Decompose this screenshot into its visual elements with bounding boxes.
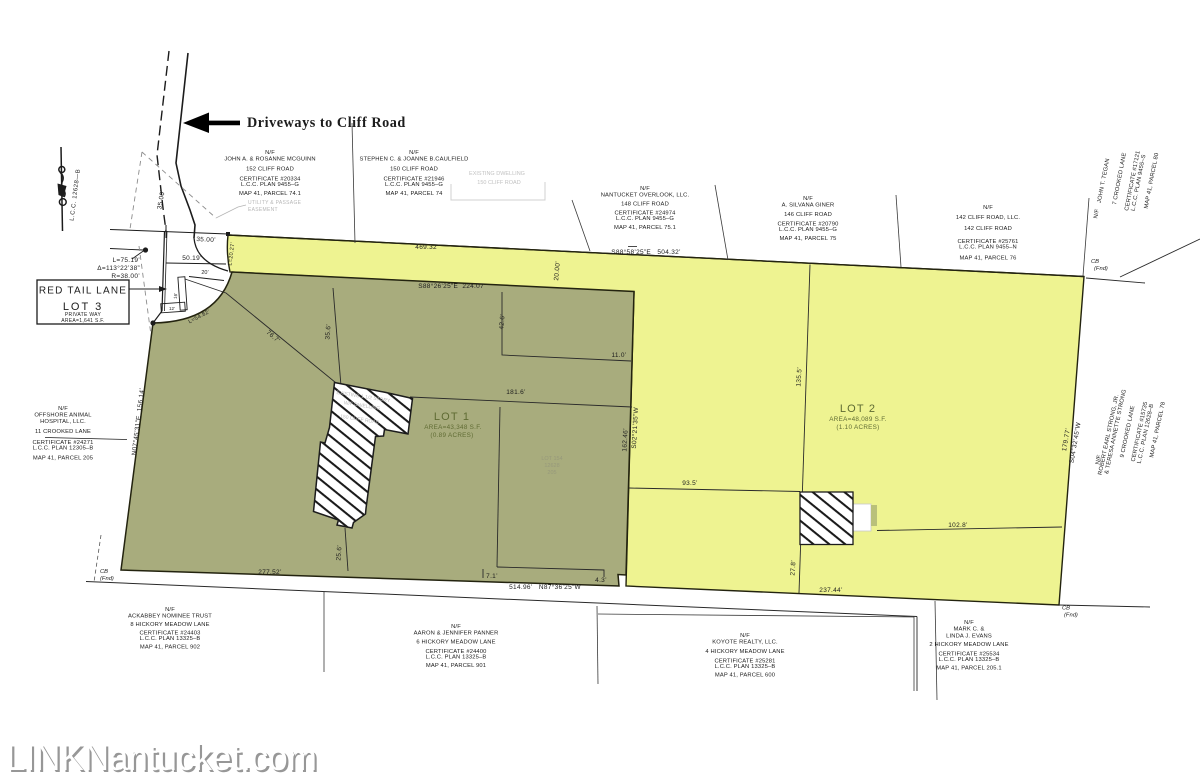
svg-text:205: 205: [547, 470, 556, 476]
svg-text:102.8’: 102.8’: [948, 522, 968, 529]
svg-text:NANTUCKET OVERLOOK, LLC.: NANTUCKET OVERLOOK, LLC.: [601, 193, 690, 199]
svg-text:(Fnd): (Fnd): [100, 576, 114, 582]
svg-text:AREA=43,348 S.F.: AREA=43,348 S.F.: [424, 424, 481, 431]
svg-text:N/F: N/F: [983, 205, 993, 211]
svg-text:S88°58’25”E 504.32’: S88°58’25”E 504.32’: [611, 248, 681, 256]
svg-text:7.1’: 7.1’: [486, 573, 498, 580]
svg-text:514.96’ N87°36’25”W: 514.96’ N87°36’25”W: [509, 583, 581, 591]
svg-text:L=75.19’: L=75.19’: [112, 257, 140, 264]
svg-text:A. SILVANA GINER: A. SILVANA GINER: [782, 203, 835, 209]
svg-text:LOT 154: LOT 154: [541, 456, 562, 462]
svg-text:MAP 41, PARCEL 76: MAP 41, PARCEL 76: [960, 256, 1017, 262]
svg-text:EXISTING DWELLING: EXISTING DWELLING: [469, 171, 525, 177]
svg-text:AREA=1,641 S.F.: AREA=1,641 S.F.: [61, 318, 105, 324]
svg-text:MAP 41, PARCEL 901: MAP 41, PARCEL 901: [426, 663, 486, 669]
svg-text:20’: 20’: [201, 270, 208, 276]
svg-text:42.6’: 42.6’: [498, 314, 506, 330]
svg-text:LOT 2: LOT 2: [840, 403, 876, 415]
svg-text:4 HICKORY MEADOW LANE: 4 HICKORY MEADOW LANE: [705, 649, 784, 655]
svg-text:35.00’: 35.00’: [196, 236, 216, 244]
svg-text:CB: CB: [1062, 606, 1070, 612]
svg-text:AARON & JENNIFER PANNER: AARON & JENNIFER PANNER: [414, 631, 499, 637]
svg-text:MAP 41, PARCEL 75.1: MAP 41, PARCEL 75.1: [614, 225, 676, 231]
svg-text:469.32’: 469.32’: [415, 244, 439, 251]
svg-text:CB: CB: [1091, 259, 1099, 265]
svg-text:N/F: N/F: [165, 607, 175, 613]
svg-text:N/F: N/F: [640, 186, 650, 192]
svg-text:N/F: N/F: [740, 633, 750, 639]
svg-text:11.0’: 11.0’: [611, 352, 626, 359]
svg-text:35.6’: 35.6’: [324, 324, 332, 340]
svg-text:150 CLIFF ROAD: 150 CLIFF ROAD: [477, 180, 520, 186]
svg-text:L.C.C. PLAN 9455–N: L.C.C. PLAN 9455–N: [959, 245, 1017, 251]
svg-text:148 CLIFF ROAD: 148 CLIFF ROAD: [621, 202, 669, 208]
svg-text:N/F: N/F: [409, 150, 419, 156]
svg-text:MAP 41, PARCEL 600: MAP 41, PARCEL 600: [715, 673, 775, 679]
svg-text:150 CLIFF ROAD: 150 CLIFF ROAD: [390, 167, 438, 173]
svg-text:HOSPITAL, LLC.: HOSPITAL, LLC.: [40, 419, 86, 425]
svg-text:93.5’: 93.5’: [682, 480, 698, 487]
svg-text:Δ=113°22’38”: Δ=113°22’38”: [97, 264, 140, 272]
svg-text:OFFSHORE ANIMAL: OFFSHORE ANIMAL: [34, 413, 92, 419]
svg-text:135.5’: 135.5’: [795, 367, 803, 387]
svg-text:N/F: N/F: [58, 406, 68, 412]
svg-text:S88°26’25”E 224.07’: S88°26’25”E 224.07’: [418, 282, 486, 290]
svg-text:LOT 1: LOT 1: [434, 411, 470, 423]
svg-text:MARK C. &: MARK C. &: [954, 627, 985, 633]
svg-text:50.19’: 50.19’: [182, 255, 202, 262]
svg-text:L.C.C. PLAN 13325–B: L.C.C. PLAN 13325–B: [426, 655, 487, 661]
svg-text:L.C.C. PLAN 9455–G: L.C.C. PLAN 9455–G: [779, 227, 837, 233]
svg-text:4.3’: 4.3’: [595, 577, 607, 584]
svg-text:CB: CB: [100, 569, 108, 575]
svg-text:EASEMENT: EASEMENT: [248, 207, 278, 213]
svg-text:152 CLIFF ROAD: 152 CLIFF ROAD: [246, 167, 294, 173]
svg-text:L.C.C. PLAN 9455–G: L.C.C. PLAN 9455–G: [241, 182, 299, 188]
svg-text:R=38.00’: R=38.00’: [111, 273, 140, 280]
svg-text:MAP 41, PARCEL 205: MAP 41, PARCEL 205: [33, 456, 93, 462]
svg-text:LINKNantucket.com: LINKNantucket.com: [6, 736, 317, 776]
svg-text:N/F: N/F: [265, 150, 275, 156]
svg-text:237.44’: 237.44’: [819, 587, 843, 594]
svg-text:142 CLIFF ROAD: 142 CLIFF ROAD: [964, 226, 1012, 232]
svg-text:MAP 41, PARCEL 74.1: MAP 41, PARCEL 74.1: [239, 191, 301, 197]
svg-text:25.6’: 25.6’: [335, 545, 343, 561]
svg-text:N/F: N/F: [451, 624, 461, 630]
svg-text:146 CLIFF ROAD: 146 CLIFF ROAD: [784, 212, 832, 218]
svg-text:STEPHEN C. & JOANNE B.CAULFIEL: STEPHEN C. & JOANNE B.CAULFIELD: [359, 157, 468, 163]
svg-text:L.C.C. PLAN 13325–B: L.C.C. PLAN 13325–B: [715, 664, 776, 670]
svg-text:MAP 41, PARCEL 902: MAP 41, PARCEL 902: [140, 645, 200, 651]
svg-text:27.8’: 27.8’: [789, 560, 797, 576]
svg-text:LINDA J. EVANS: LINDA J. EVANS: [946, 634, 992, 640]
svg-text:(Fnd): (Fnd): [1094, 266, 1108, 272]
svg-text:N/F: N/F: [964, 620, 974, 626]
svg-text:277.52’: 277.52’: [258, 569, 282, 576]
svg-text:L.C.C. PLAN 9455–G: L.C.C. PLAN 9455–G: [385, 182, 443, 188]
svg-text:L.C.C. PLAN 13325–B: L.C.C. PLAN 13325–B: [140, 636, 201, 642]
svg-text:AREA=48,089 S.F.: AREA=48,089 S.F.: [829, 416, 886, 423]
svg-text:JOHN A. & ROSANNE MCGUINN: JOHN A. & ROSANNE MCGUINN: [224, 157, 315, 163]
svg-text:(1.10 ACRES): (1.10 ACRES): [836, 424, 879, 431]
svg-text:11 CROOKED LANE: 11 CROOKED LANE: [35, 429, 91, 435]
svg-text:N/F: N/F: [803, 196, 813, 202]
svg-text:KOYOTE REALTY, LLC.: KOYOTE REALTY, LLC.: [712, 640, 778, 646]
svg-text:L.C.C. PLAN 12305–B: L.C.C. PLAN 12305–B: [33, 446, 94, 452]
svg-text:142 CLIFF ROAD, LLC.: 142 CLIFF ROAD, LLC.: [956, 215, 1020, 221]
svg-text:12’: 12’: [169, 306, 175, 311]
svg-text:12628: 12628: [544, 463, 559, 469]
svg-text:MAP 41, PARCEL 74: MAP 41, PARCEL 74: [386, 191, 444, 197]
svg-text:Driveways to Cliff Road: Driveways to Cliff Road: [247, 115, 406, 131]
svg-text:L.C.C. PLAN 9455–G: L.C.C. PLAN 9455–G: [616, 216, 674, 222]
svg-text:L.C.C. PLAN 13325–B: L.C.C. PLAN 13325–B: [939, 657, 1000, 663]
svg-text:UTILITY & PASSAGE: UTILITY & PASSAGE: [248, 200, 302, 206]
svg-text:MAP 41, PARCEL 205.1: MAP 41, PARCEL 205.1: [936, 666, 1001, 672]
svg-text:8 HICKORY MEADOW LANE: 8 HICKORY MEADOW LANE: [130, 622, 209, 628]
svg-text:6 HICKORY MEADOW LANE: 6 HICKORY MEADOW LANE: [416, 640, 495, 646]
svg-text:162.46’: 162.46’: [621, 428, 629, 452]
svg-text:181.6’: 181.6’: [506, 389, 526, 396]
svg-text:16’: 16’: [173, 293, 179, 299]
svg-text:ACKABBEY NOMINEE TRUST: ACKABBEY NOMINEE TRUST: [128, 614, 212, 620]
svg-text:(Fnd): (Fnd): [1064, 613, 1078, 619]
svg-text:(0.89 ACRES): (0.89 ACRES): [430, 432, 473, 439]
svg-text:MAP 41, PARCEL 75: MAP 41, PARCEL 75: [780, 236, 837, 242]
svg-text:2 HICKORY MEADOW LANE: 2 HICKORY MEADOW LANE: [929, 642, 1008, 648]
svg-text:RED TAIL LANE: RED TAIL LANE: [39, 286, 127, 297]
